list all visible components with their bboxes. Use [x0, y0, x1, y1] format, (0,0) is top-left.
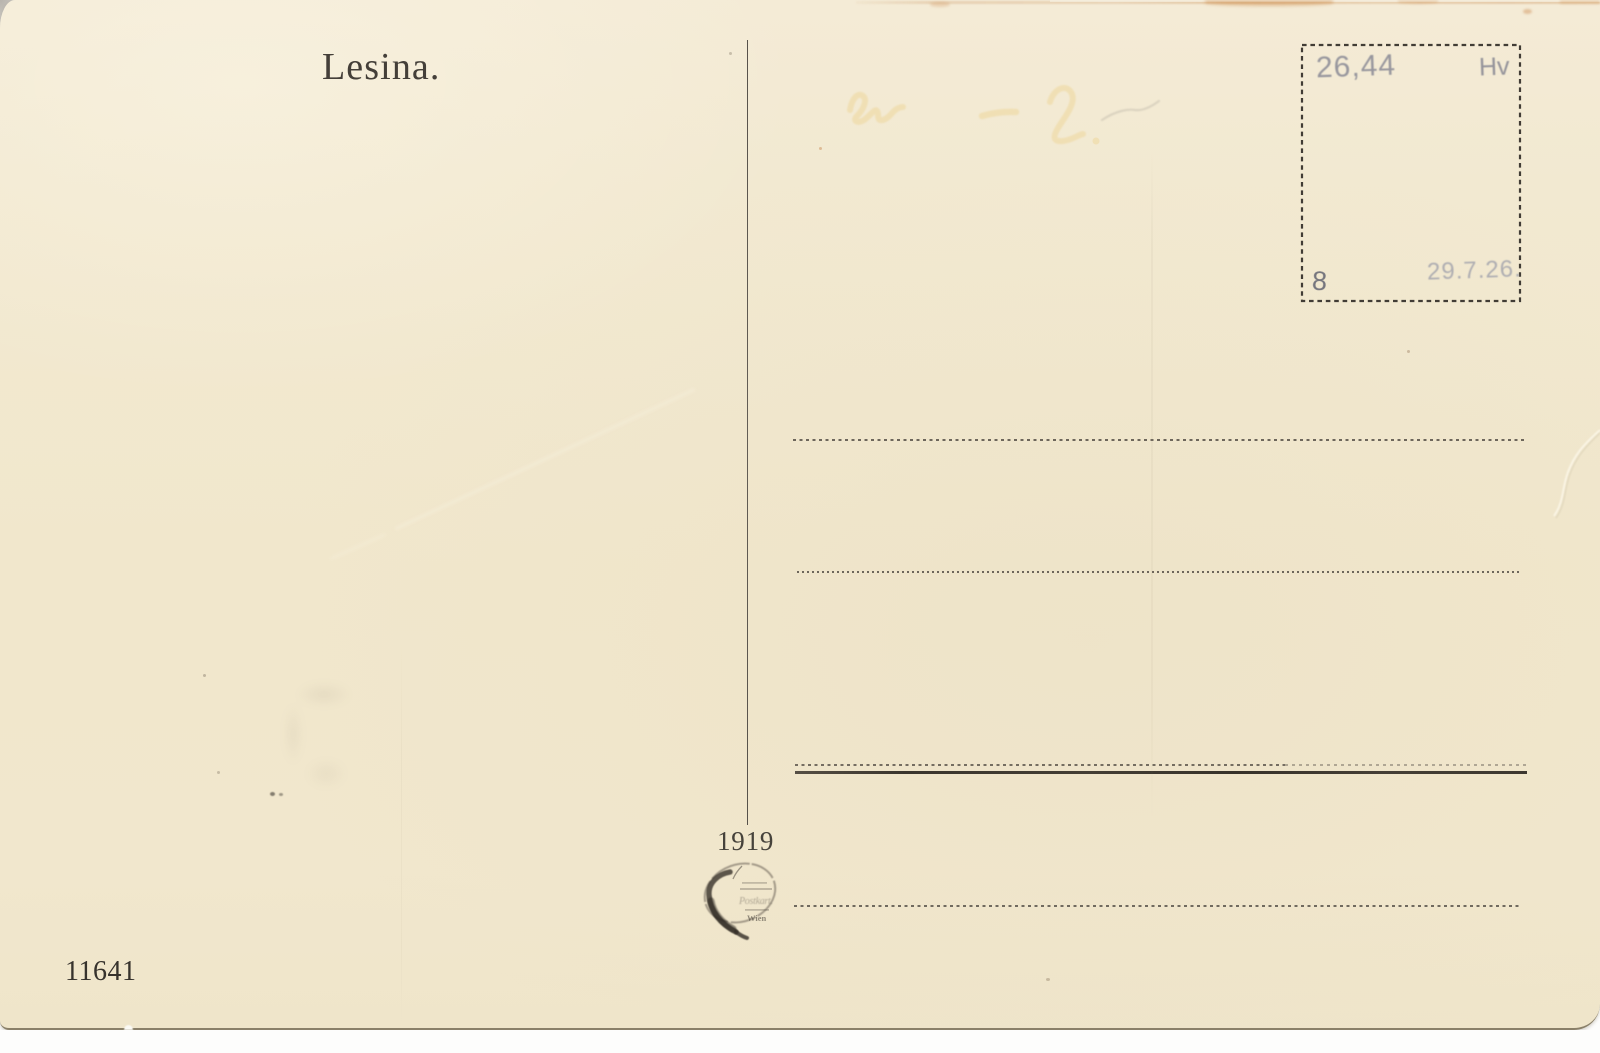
svg-text:Postkart.: Postkart. [738, 896, 773, 907]
svg-text:Wien: Wien [747, 913, 766, 923]
